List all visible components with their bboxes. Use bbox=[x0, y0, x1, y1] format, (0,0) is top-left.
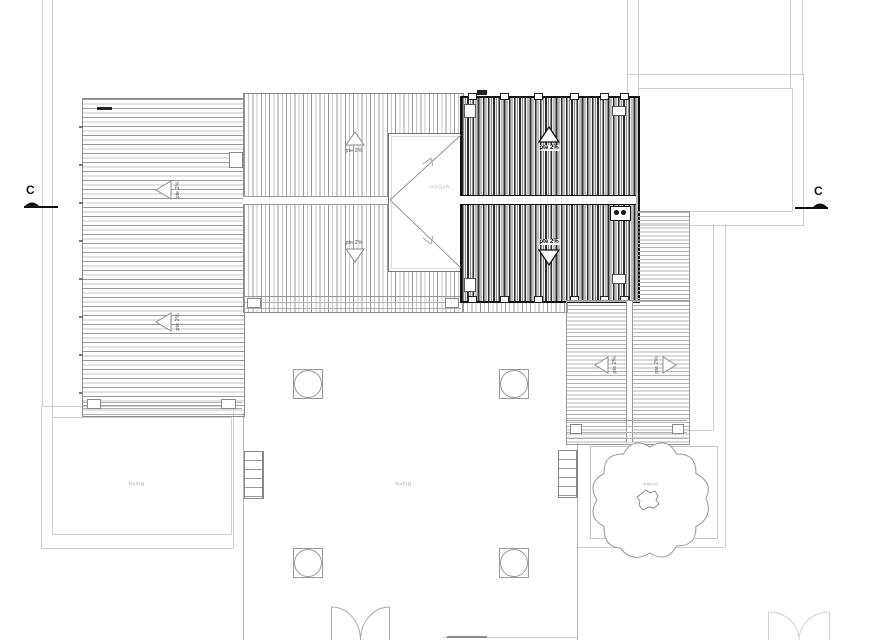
hip-label: HOGAR bbox=[430, 185, 450, 190]
slope-label: pte 2% bbox=[345, 240, 362, 246]
slope-arrow-left-lower bbox=[156, 313, 171, 331]
slope-arrow-middle-up bbox=[346, 132, 364, 145]
slope-label: pte 2% bbox=[538, 239, 559, 245]
slope-arrow-dark-down bbox=[539, 250, 559, 265]
door-swing-center bbox=[332, 607, 390, 640]
section-marker-right: C bbox=[814, 184, 823, 198]
patio-label-tree: PATIO bbox=[644, 482, 658, 487]
slope-label: pte 2% bbox=[654, 356, 660, 373]
section-line-right bbox=[795, 207, 828, 209]
slope-arrow-pergola-left bbox=[595, 357, 608, 373]
tree-canopy bbox=[593, 443, 708, 558]
slope-label: pte 2% bbox=[345, 148, 362, 154]
patio-label-center: PATIO bbox=[396, 482, 412, 487]
slope-arrow-dark-up bbox=[539, 127, 559, 142]
section-line-left bbox=[24, 206, 58, 208]
slope-label: pte 2% bbox=[538, 145, 559, 151]
door-swing-right bbox=[769, 612, 830, 640]
patio-label-left: PATIO bbox=[129, 482, 145, 487]
slope-arrow-middle-down bbox=[346, 249, 364, 262]
roof-plan-canvas: C C pte 2% pte 2% pte 2% pte 2% pte 2% p… bbox=[0, 0, 880, 640]
slope-label: pte 2% bbox=[175, 181, 181, 198]
slope-label: pte 2% bbox=[612, 356, 618, 373]
slope-arrow-left-upper bbox=[156, 181, 171, 199]
slope-arrow-pergola-right bbox=[663, 357, 676, 373]
slope-label: pte 2% bbox=[175, 313, 181, 330]
hip-diagonal-lines bbox=[390, 135, 461, 268]
section-marker-left: C bbox=[26, 183, 35, 197]
drawing-overlay bbox=[0, 0, 880, 640]
